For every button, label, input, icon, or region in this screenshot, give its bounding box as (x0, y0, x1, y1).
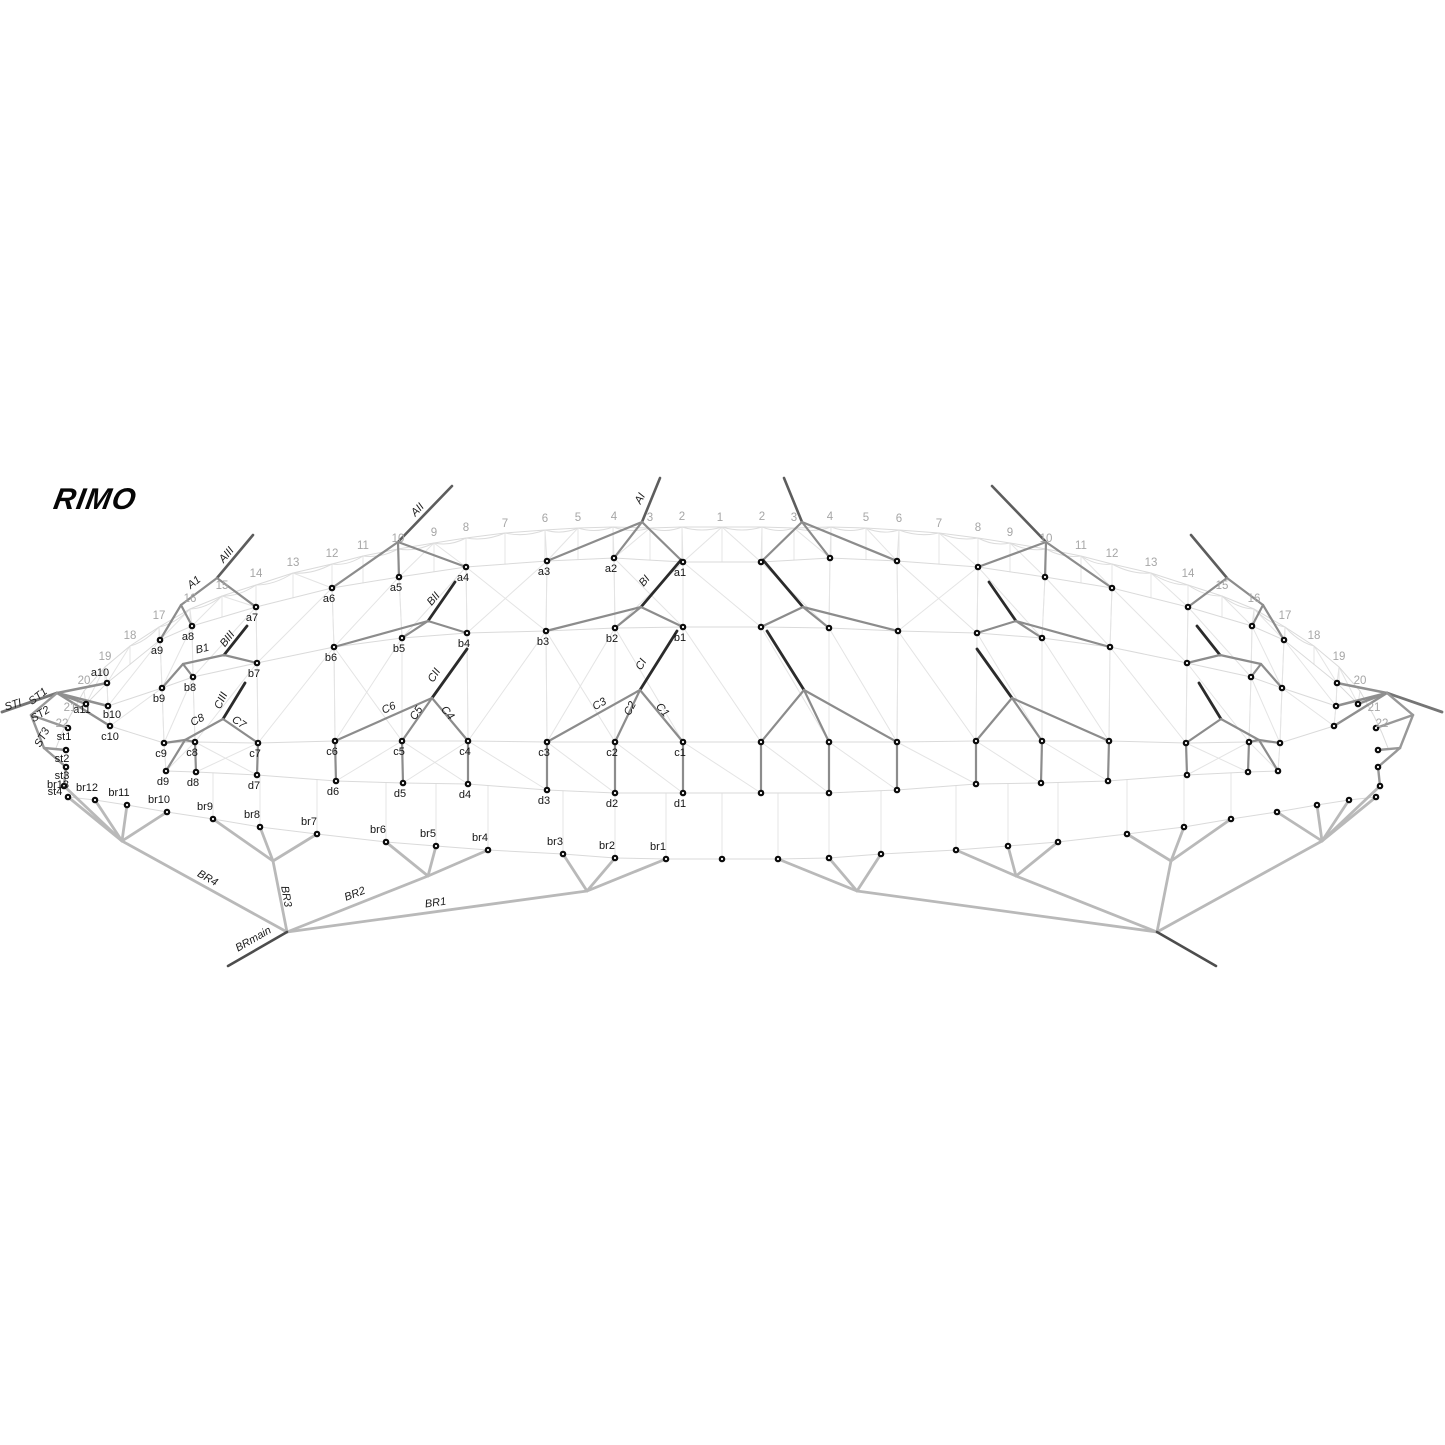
mesh-diagonal (977, 633, 1042, 741)
point-b10-center (107, 705, 109, 707)
point-d9-center (165, 770, 167, 772)
point-c5-center (401, 740, 403, 742)
cell-number-6-left: 6 (542, 513, 548, 525)
bridle-edge-brmain (1157, 932, 1216, 966)
point-br11-mirror-center (1316, 804, 1318, 806)
point-label-b9: b9 (153, 693, 165, 705)
point-d8-center (195, 771, 197, 773)
point-br13-center (67, 796, 69, 798)
cell-number-7-left: 7 (502, 518, 508, 530)
point-a1-mirror-center (760, 561, 762, 563)
mesh-diagonal (829, 742, 897, 790)
bridle-edge-br (122, 805, 127, 841)
point-b9-mirror-center (1281, 687, 1283, 689)
cell-number-1-left: 1 (717, 512, 723, 524)
bridle-edge-line (1221, 719, 1259, 740)
bridle-edge-stub (763, 560, 803, 607)
mesh-diagonal (898, 567, 978, 631)
point-c3-center (546, 741, 548, 743)
mesh-diagonal (258, 647, 334, 743)
point-label-d1: d1 (674, 798, 686, 810)
bridle-edge-sti (1387, 693, 1442, 712)
mesh-vertical (829, 558, 830, 628)
bridle-edge-line (547, 690, 640, 742)
cell-number-20-right: 20 (1354, 675, 1367, 687)
point-b1-center (682, 626, 684, 628)
point-label-c3: c3 (538, 747, 550, 759)
point-d6-mirror-center (1107, 780, 1109, 782)
bridle-edge-line (398, 542, 399, 577)
cell-number-12-right: 12 (1106, 548, 1119, 560)
bridle-edge-line (1041, 741, 1042, 783)
mesh-vertical (1186, 663, 1187, 743)
mesh-diagonal (866, 528, 897, 561)
mesh-vertical (897, 561, 898, 631)
mesh-diagonal (1045, 577, 1110, 647)
bridle-edge-br (1157, 861, 1171, 932)
bridle-edge-br (563, 854, 587, 891)
mesh-diagonal (434, 543, 466, 567)
point-b9-center (161, 687, 163, 689)
point-a8-center (191, 625, 193, 627)
cell-number-10-right: 10 (1040, 533, 1053, 545)
point-a4-mirror-center (977, 566, 979, 568)
point-br8-center (259, 826, 261, 828)
point-d4-center (467, 783, 469, 785)
cell-number-2-right: 2 (759, 511, 765, 523)
line-label-C3: C3 (590, 695, 609, 713)
cell-number-6-right: 6 (896, 513, 902, 525)
point-b2-center (614, 627, 616, 629)
bridle-edge-line (1220, 655, 1261, 664)
line-label-STI: STI (3, 697, 23, 714)
point-b2-mirror-center (828, 627, 830, 629)
point-d6-center (335, 780, 337, 782)
mesh-vertical (1249, 677, 1251, 742)
cell-number-14-right: 14 (1182, 568, 1195, 580)
cell-number-16-left: 16 (184, 593, 197, 605)
point-label-c5: c5 (393, 746, 405, 758)
point-label-d5: d5 (394, 788, 406, 800)
cell-number-4-right: 4 (827, 511, 834, 523)
row-line-b (108, 627, 1336, 706)
point-c6-center (334, 740, 336, 742)
point-label-a1: a1 (674, 567, 686, 579)
point-label-a10: a10 (91, 667, 109, 679)
point-label-br1: br1 (650, 841, 666, 853)
point-label-d8: d8 (187, 777, 199, 789)
bridle-edge-line (224, 655, 257, 663)
point-d1-mirror-center (760, 792, 762, 794)
point-label-a8: a8 (182, 631, 194, 643)
point-a2-mirror-center (829, 557, 831, 559)
point-label-d6: d6 (327, 786, 339, 798)
bridle-edge-line (1187, 655, 1220, 663)
mesh-diagonal (829, 628, 897, 742)
point-br8-mirror-center (1183, 826, 1185, 828)
bridle-edge-line (428, 621, 467, 633)
point-d9-mirror-center (1277, 770, 1279, 772)
point-b1-mirror-center (760, 626, 762, 628)
cell-number-8-left: 8 (463, 522, 469, 534)
mesh-vertical (1110, 588, 1112, 647)
point-label-d4: d4 (459, 789, 471, 801)
point-label-br2: br2 (599, 840, 615, 852)
point-br12-center (94, 799, 96, 801)
point-br5-mirror-center (1007, 845, 1009, 847)
point-label-c6: c6 (326, 746, 338, 758)
point-c9-center (163, 742, 165, 744)
row-line-a (86, 558, 1358, 704)
point-label-c9: c9 (155, 748, 167, 760)
point-a1-center (682, 561, 684, 563)
point-c4-mirror-center (975, 740, 977, 742)
point-br3-center (562, 853, 564, 855)
cell-number-8-right: 8 (975, 522, 981, 534)
mesh-vertical (1251, 626, 1252, 677)
cell-number-15-left: 15 (216, 580, 229, 592)
point-label-br6: br6 (370, 824, 386, 836)
bridle-edge-line (183, 655, 224, 664)
cell-number-21-left: 21 (64, 702, 77, 714)
point-label-br3: br3 (547, 836, 563, 848)
mesh-diagonal (615, 628, 683, 742)
bridle-edge-br (1322, 797, 1376, 841)
mesh-diagonal (898, 631, 976, 741)
point-c6-mirror-center (1108, 740, 1110, 742)
point-b7-mirror-center (1186, 662, 1188, 664)
point-a11-mirror-center (1357, 703, 1359, 705)
line-label-CI: CI (633, 657, 649, 673)
point-c1-center (682, 741, 684, 743)
mesh-diagonal (468, 741, 547, 790)
point-a9-mirror-center (1283, 639, 1285, 641)
point-label-br11: br11 (108, 787, 129, 799)
cell-number-15-right: 15 (1216, 580, 1229, 592)
bridle-edge-line (978, 542, 1046, 567)
point-label-st1: st1 (57, 731, 72, 743)
point-b10-mirror-center (1335, 705, 1337, 707)
cell-number-11-left: 11 (357, 540, 369, 552)
point-b3-mirror-center (897, 630, 899, 632)
mesh-diagonal (1110, 647, 1186, 743)
mesh-diagonal (547, 742, 615, 793)
point-br4-mirror-center (955, 849, 957, 851)
point-label-br5: br5 (420, 828, 436, 840)
line-label-CIII: CIII (212, 690, 230, 711)
mesh-diagonal (897, 742, 976, 784)
point-label-c8: c8 (186, 747, 198, 759)
line-label-C7: C7 (230, 714, 249, 732)
bridle-edge-riser (1191, 535, 1227, 578)
mesh-diagonal (614, 528, 650, 558)
mesh-vertical (1109, 647, 1110, 741)
point-d3-center (546, 789, 548, 791)
point-label-br10: br10 (148, 794, 170, 806)
mesh-vertical (1282, 640, 1284, 688)
mesh-vertical (977, 567, 978, 633)
line-label-CII: CII (426, 666, 444, 684)
cell-number-5-left: 5 (575, 512, 581, 524)
point-br7-mirror-center (1126, 833, 1128, 835)
bridle-edge-line (976, 698, 1012, 741)
bridle-edge-br (1317, 805, 1322, 841)
point-label-b5: b5 (393, 643, 405, 655)
point-label-br8: br8 (244, 809, 260, 821)
mesh-diagonal (683, 742, 761, 793)
bridle-edge-line (398, 542, 466, 567)
mesh-diagonal (615, 562, 683, 628)
point-c4-center (467, 740, 469, 742)
cell-number-18-left: 18 (124, 630, 137, 642)
point-c5-mirror-center (1041, 740, 1043, 742)
point-label-d9: d9 (157, 776, 169, 788)
point-br9-mirror-center (1230, 818, 1232, 820)
point-bc-center (721, 858, 723, 860)
line-label-AI: AI (632, 491, 648, 507)
point-b5-center (401, 637, 403, 639)
mesh-diagonal (978, 567, 1042, 638)
point-c1-mirror-center (760, 741, 762, 743)
cell-number-13-left: 13 (287, 557, 300, 569)
brand-logo: RIMO (51, 483, 139, 517)
mesh-diagonal (466, 567, 546, 631)
point-a5-mirror-center (1044, 576, 1046, 578)
mesh-diagonal (257, 588, 332, 663)
point-a8-mirror-center (1251, 625, 1253, 627)
bridle-edge-br (1127, 834, 1171, 861)
point-a6-center (331, 587, 333, 589)
cell-number-11-right: 11 (1075, 540, 1087, 552)
point-br7-center (316, 833, 318, 835)
bridle-edge-br (68, 797, 122, 841)
point-d7-center (256, 774, 258, 776)
labels: a1a2a3a4a5a6a7a8a9a10a11b1b2b3b4b5b6b7b8… (3, 491, 1388, 954)
line-label-BR4: BR4 (195, 868, 220, 889)
point-c7-center (257, 742, 259, 744)
point-d8-mirror-center (1247, 771, 1249, 773)
bridle-edge-line (1186, 719, 1221, 743)
point-label-d7: d7 (248, 780, 260, 792)
mesh-vertical (1187, 607, 1188, 663)
point-label-c7: c7 (249, 748, 261, 760)
point-a7-mirror-center (1187, 606, 1189, 608)
line-label-BR1: BR1 (424, 896, 447, 911)
mesh-diagonal (761, 742, 829, 793)
point-c2-mirror-center (828, 741, 830, 743)
point-b6-center (333, 646, 335, 648)
cell-number-16-right: 16 (1248, 593, 1261, 605)
bridle-edge-stub (977, 649, 1012, 698)
point-label-b7: b7 (248, 668, 260, 680)
cell-number-21-right: 21 (1368, 702, 1381, 714)
point-br10-center (166, 811, 168, 813)
cell-number-7-right: 7 (936, 518, 942, 530)
line-label-ST1: ST1 (27, 686, 50, 708)
point-br3-mirror-center (880, 853, 882, 855)
bridle-edge-br (428, 846, 436, 876)
bridle-edge-line (1248, 742, 1249, 772)
cell-number-2-left: 2 (679, 511, 685, 523)
point-label-d3: d3 (538, 795, 550, 807)
point-d5-mirror-center (1040, 782, 1042, 784)
point-label-br13: br13 (47, 779, 69, 791)
line-label-C2: C2 (622, 700, 639, 718)
point-br1-mirror-center (777, 858, 779, 860)
point-d2-center (614, 792, 616, 794)
point-d7-mirror-center (1186, 774, 1188, 776)
point-label-c10: c10 (101, 731, 119, 743)
point-d3-mirror-center (896, 789, 898, 791)
bridle-edge-line (977, 621, 1016, 633)
point-label-a7: a7 (246, 612, 258, 624)
point-a10-mirror-center (1336, 682, 1338, 684)
bridle-edge-br (122, 812, 167, 841)
point-b4-center (466, 632, 468, 634)
point-br6-center (385, 841, 387, 843)
point-c3-mirror-center (896, 741, 898, 743)
cell-number-9-right: 9 (1007, 527, 1013, 539)
point-label-a6: a6 (323, 593, 335, 605)
mesh-diagonal (761, 562, 829, 628)
mesh-diagonal (615, 742, 683, 793)
mesh-diagonal (195, 742, 257, 775)
point-label-b6: b6 (325, 652, 337, 664)
bridle-edge-line (1045, 542, 1046, 577)
bridle-edge-br (273, 834, 317, 861)
point-st3-center (65, 766, 67, 768)
bridle-edge-br (386, 842, 428, 876)
bridle-edge-stub (767, 631, 804, 690)
point-a4-center (465, 566, 467, 568)
mesh-diagonal (1284, 640, 1336, 706)
mesh-vertical (1336, 683, 1337, 706)
line-label-C4: C4 (438, 704, 456, 722)
line-label-C5: C5 (408, 703, 426, 722)
point-label-b10: b10 (103, 709, 121, 721)
point-label-d2: d2 (606, 798, 618, 810)
bridle-edge-br (857, 891, 1157, 932)
point-c8-center (194, 741, 196, 743)
point-st2-center (65, 749, 67, 751)
line-label-AIII: AIII (216, 545, 236, 566)
cell-number-19-left: 19 (99, 651, 112, 663)
mesh-diagonal (1112, 588, 1187, 663)
point-label-br4: br4 (472, 832, 488, 844)
point-d4-mirror-center (975, 783, 977, 785)
point-c8-mirror-center (1248, 741, 1250, 743)
mesh-diagonal (761, 627, 829, 742)
point-b3-center (545, 630, 547, 632)
mesh-diagonal (1042, 741, 1108, 781)
mesh-diagonal (976, 741, 1041, 783)
bridle-edge-line (761, 607, 803, 627)
point-label-a4: a4 (457, 572, 469, 584)
point-br2-mirror-center (828, 857, 830, 859)
mesh-diagonal (794, 528, 830, 558)
mesh-vertical (1278, 743, 1280, 771)
point-label-b4: b4 (458, 638, 470, 650)
point-br9-center (212, 818, 214, 820)
mesh-diagonal (683, 562, 761, 627)
cell-number-14-left: 14 (250, 568, 263, 580)
bridle-edge-line (1186, 743, 1187, 775)
bridle-edge-line (641, 607, 683, 627)
bridle-edge-br (1008, 846, 1016, 876)
bridle-edge-br (1277, 812, 1322, 841)
point-label-b3: b3 (537, 636, 549, 648)
cell-number-22-left: 22 (56, 718, 69, 730)
point-c10-center (109, 725, 111, 727)
point-br12-mirror-center (1348, 799, 1350, 801)
point-label-br7: br7 (301, 816, 317, 828)
line-label-C8: C8 (189, 711, 208, 729)
point-d1-center (682, 792, 684, 794)
point-br4-center (487, 849, 489, 851)
point-a3-center (546, 560, 548, 562)
mesh-vertical (897, 631, 898, 742)
mesh-diagonal (222, 596, 256, 607)
point-label-c4: c4 (459, 746, 471, 758)
mesh-vertical (107, 683, 108, 706)
bridle-lines-right (761, 478, 1442, 966)
point-label-c1: c1 (674, 747, 686, 759)
line-label-BI: BI (637, 573, 653, 589)
cell-number-17-right: 17 (1279, 610, 1292, 622)
point-st2-mirror-center (1377, 749, 1379, 751)
point-label-b1: b1 (674, 632, 686, 644)
cell-number-22-right: 22 (1376, 718, 1389, 730)
mesh-diagonal (468, 631, 546, 741)
kite-bridle-diagram: a1a2a3a4a5a6a7a8a9a10a11b1b2b3b4b5b6b7b8… (0, 0, 1445, 1445)
mesh-diagonal (547, 528, 578, 561)
point-d2-mirror-center (828, 792, 830, 794)
bridle-edge-stub (989, 582, 1016, 621)
point-br11-center (126, 804, 128, 806)
bridle-edge-stub (1199, 683, 1221, 719)
point-label-st2: st2 (55, 753, 70, 765)
cell-number-17-left: 17 (153, 610, 166, 622)
point-a7-center (255, 606, 257, 608)
mesh-vertical (1280, 688, 1282, 743)
bridle-edge-br (428, 850, 488, 876)
point-a3-mirror-center (896, 560, 898, 562)
point-label-a9: a9 (151, 645, 163, 657)
bridle-edge-br (956, 850, 1016, 876)
point-b6-mirror-center (1109, 646, 1111, 648)
cell-number-20-left: 20 (78, 675, 91, 687)
bridle-edge-line (761, 690, 804, 742)
point-br10-mirror-center (1276, 811, 1278, 813)
point-a6-mirror-center (1111, 587, 1113, 589)
cell-number-5-right: 5 (863, 512, 869, 524)
cell-number-10-left: 10 (392, 533, 405, 545)
bridle-edge-riser (398, 486, 452, 542)
point-label-a5: a5 (390, 582, 402, 594)
point-label-a3: a3 (538, 566, 550, 578)
row-line-c (110, 726, 1334, 743)
bridle-edge-br (857, 854, 881, 891)
mesh-diagonal (1188, 607, 1251, 677)
bridle-edge-br (1016, 842, 1058, 876)
point-br6-mirror-center (1057, 841, 1059, 843)
point-c2-center (614, 741, 616, 743)
cell-number-19-right: 19 (1333, 651, 1346, 663)
point-a5-center (398, 576, 400, 578)
cell-number-3-left: 3 (647, 512, 653, 524)
point-st4-mirror-center (1379, 785, 1381, 787)
cell-number-13-right: 13 (1145, 557, 1158, 569)
